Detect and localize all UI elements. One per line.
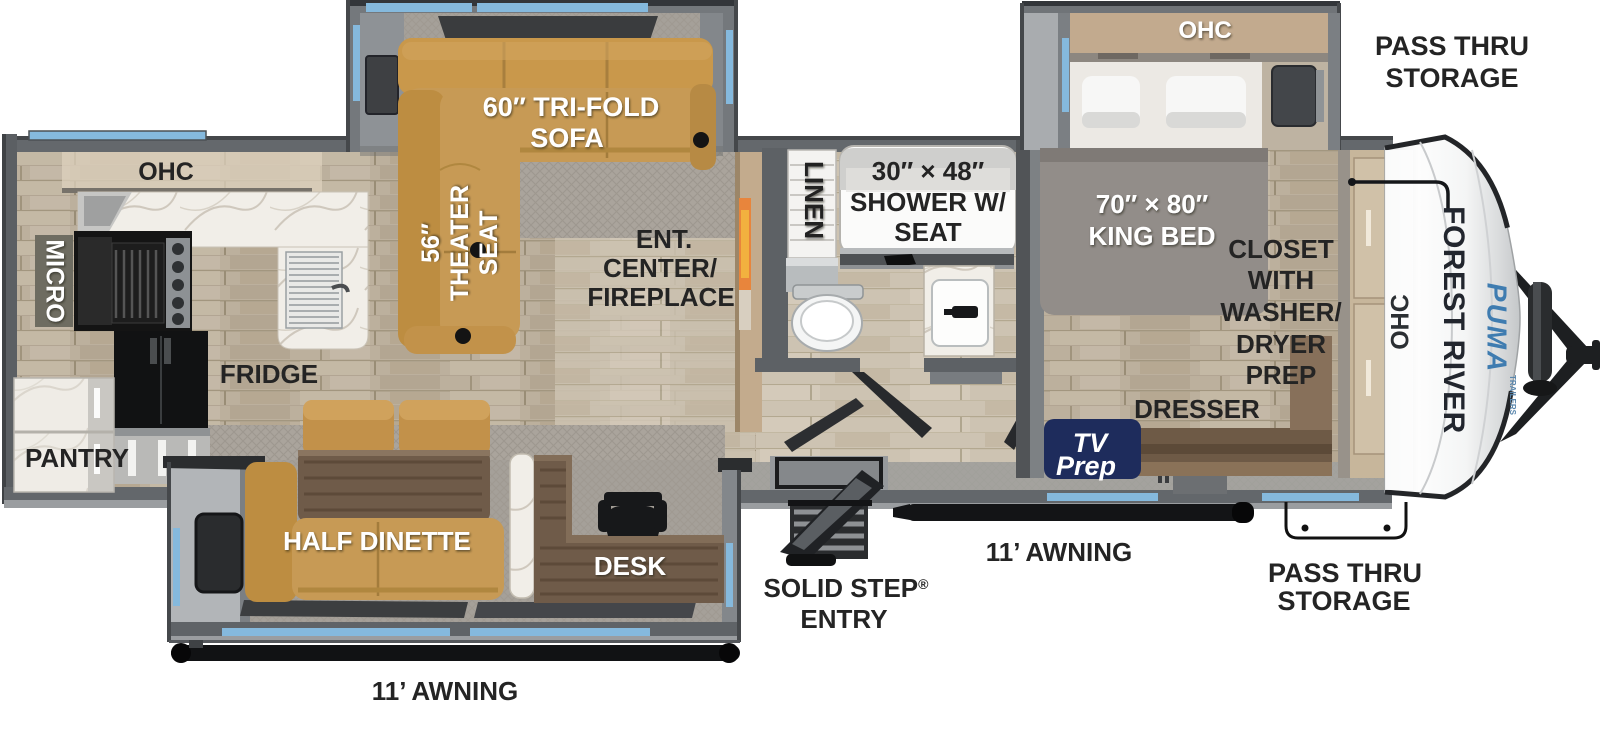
svg-text:TRAILERS: TRAILERS bbox=[1508, 375, 1517, 416]
svg-text:60″ TRI-FOLD: 60″ TRI-FOLD bbox=[483, 92, 659, 122]
svg-text:11’ AWNING: 11’ AWNING bbox=[372, 676, 518, 706]
svg-text:HALF DINETTE: HALF DINETTE bbox=[283, 526, 471, 556]
svg-text:PASS THRU: PASS THRU bbox=[1375, 31, 1529, 61]
svg-text:SOLID STEP®: SOLID STEP® bbox=[764, 573, 930, 603]
svg-text:SHOWER W/: SHOWER W/ bbox=[850, 187, 1006, 217]
svg-text:STORAGE: STORAGE bbox=[1277, 586, 1410, 616]
svg-text:KING BED: KING BED bbox=[1088, 221, 1215, 251]
svg-text:DRYER: DRYER bbox=[1236, 329, 1326, 359]
svg-text:30″ × 48″: 30″ × 48″ bbox=[872, 156, 984, 186]
svg-text:FIREPLACE: FIREPLACE bbox=[587, 282, 734, 312]
svg-text:11’ AWNING: 11’ AWNING bbox=[986, 537, 1132, 567]
svg-text:SOFA: SOFA bbox=[530, 123, 604, 153]
svg-text:STORAGE: STORAGE bbox=[1385, 63, 1518, 93]
svg-text:DESK: DESK bbox=[594, 551, 666, 581]
svg-text:OHC: OHC bbox=[1387, 294, 1415, 350]
svg-text:MICRO: MICRO bbox=[40, 239, 68, 322]
svg-text:70″ × 80″: 70″ × 80″ bbox=[1096, 189, 1208, 219]
svg-text:ENTRY: ENTRY bbox=[800, 604, 887, 634]
svg-text:SEAT: SEAT bbox=[894, 217, 962, 247]
svg-text:CENTER/: CENTER/ bbox=[603, 253, 717, 283]
svg-text:SEAT: SEAT bbox=[475, 211, 503, 276]
svg-text:DRESSER: DRESSER bbox=[1134, 394, 1260, 424]
svg-text:THEATER: THEATER bbox=[446, 185, 474, 301]
svg-text:FOREST RIVER: FOREST RIVER bbox=[1437, 206, 1470, 434]
svg-text:LINEN: LINEN bbox=[799, 161, 829, 239]
svg-text:PUMA: PUMA bbox=[1482, 283, 1513, 373]
svg-text:FRIDGE: FRIDGE bbox=[220, 359, 318, 389]
svg-text:WITH: WITH bbox=[1248, 265, 1314, 295]
svg-text:OHC: OHC bbox=[1178, 17, 1231, 44]
svg-text:ENT.: ENT. bbox=[636, 224, 692, 254]
svg-text:OHC: OHC bbox=[138, 158, 194, 186]
svg-text:CLOSET: CLOSET bbox=[1228, 234, 1334, 264]
svg-text:PANTRY: PANTRY bbox=[25, 443, 129, 473]
svg-text:56″: 56″ bbox=[417, 223, 445, 263]
svg-text:PASS THRU: PASS THRU bbox=[1268, 558, 1422, 588]
svg-text:WASHER/: WASHER/ bbox=[1220, 297, 1341, 327]
svg-text:PREP: PREP bbox=[1246, 360, 1317, 390]
svg-text:Prep: Prep bbox=[1056, 451, 1116, 481]
